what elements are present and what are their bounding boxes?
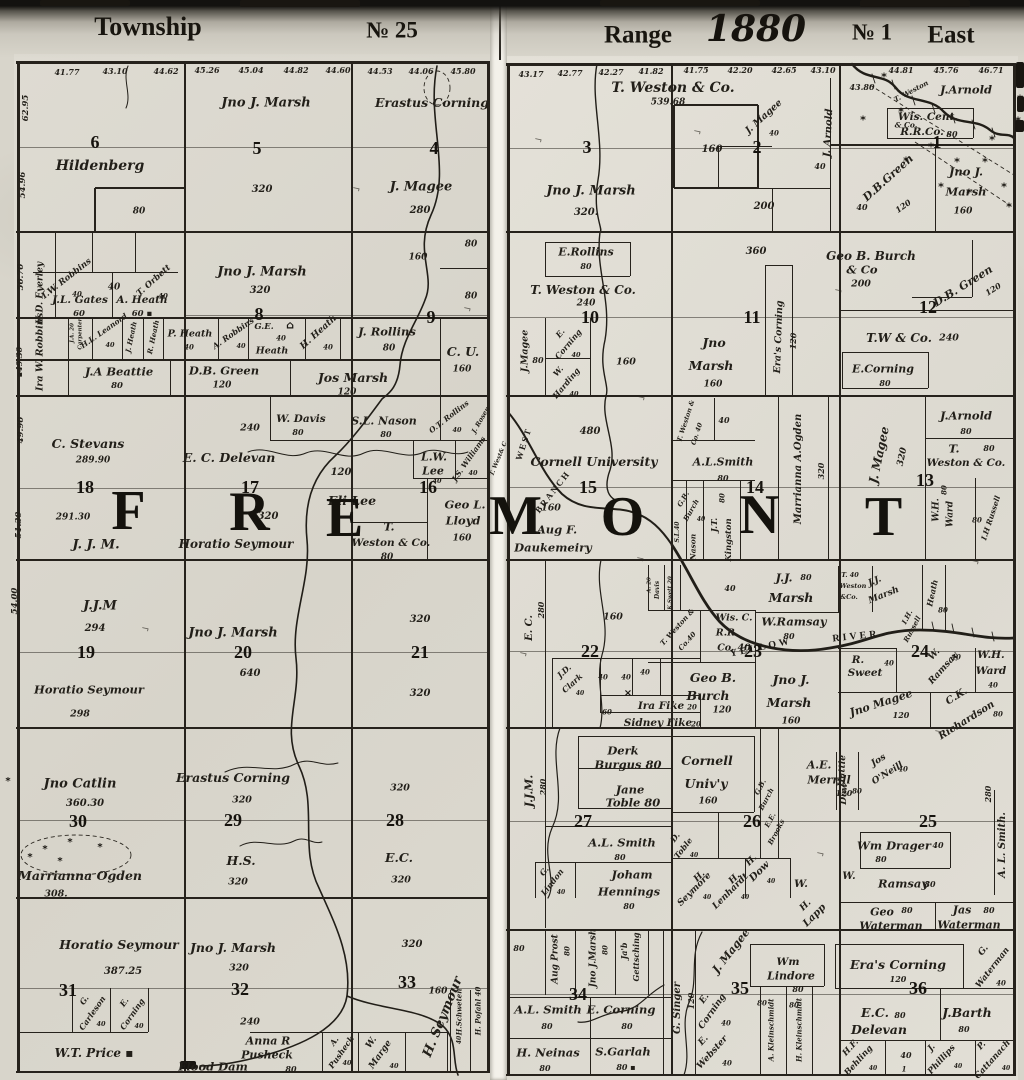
tree-mark: * [954, 157, 960, 168]
parcel-owner-label: H.L. Leanord [79, 312, 128, 350]
section-number: 27 [574, 812, 592, 830]
parcel-owner-label: S.L.40 [675, 522, 681, 543]
section-number: 31 [59, 981, 77, 999]
acreage-value: 320 [402, 940, 423, 950]
survey-mark: ¬ [140, 624, 150, 636]
acreage-value: 80 [852, 788, 862, 795]
acreage-value: 43.10 [102, 67, 127, 75]
acreage-value: 80 [789, 1002, 799, 1009]
acreage-value: 640 [240, 669, 261, 679]
acreage-value: 120 [984, 281, 1002, 297]
acreage-value: 40 [134, 1023, 143, 1030]
parcel-owner-label: Jno J. Marsh [217, 266, 306, 279]
parcel-owner-label: Wis. C. [716, 613, 753, 623]
parcel-owner-label: Joham [611, 869, 652, 881]
parcel-owner-label: &Co. [840, 594, 858, 601]
section-number: 10 [581, 308, 599, 326]
acreage-value: 40 [856, 203, 867, 211]
acreage-value: 291.30 [56, 514, 90, 523]
marsh-mark: * [42, 845, 47, 855]
parcel-owner-label: Jno [702, 337, 725, 350]
section-number: 34 [569, 985, 587, 1003]
parcel-owner-label: J.J. [775, 572, 792, 584]
acreage-value: 80 [111, 382, 123, 391]
acreage-value: 80 [621, 1022, 632, 1030]
acreage-value: 40 [389, 1063, 398, 1070]
parcel-owner-label: Weston [840, 583, 867, 590]
parcel-owner-label: T. Weston & Co. [530, 284, 636, 296]
parcel-owner-label: L.W. [421, 452, 447, 463]
parcel-owner-label: W.T. Price ▪ [55, 1047, 134, 1059]
acreage-value: 80 [541, 1022, 552, 1030]
parcel-owner-label: Aug Prost [552, 934, 561, 984]
parcel-owner-label: Kingston [725, 518, 734, 561]
acreage-value: 80 [901, 906, 912, 914]
acreage-value: 41.82 [638, 67, 663, 75]
tree-mark: * [928, 142, 934, 153]
acreage-value: 20 [691, 721, 701, 728]
acreage-value: 280 [537, 602, 545, 619]
acreage-value: 320 [252, 185, 273, 195]
parcel-owner-label: W. [365, 1036, 379, 1051]
acreage-value: 60 [602, 709, 612, 716]
parcel-owner-label: A. 20 [647, 577, 653, 593]
parcel-owner-label: Dow [840, 783, 850, 805]
parcel-owner-label: A. Heath [116, 295, 167, 306]
acreage-value: 80 [983, 906, 994, 914]
acreage-value: 43.80 [849, 83, 874, 91]
acreage-value: 320 [229, 963, 249, 973]
parcel-owner-label: Wis. Cent. [898, 112, 958, 123]
acreage-value: 120 [331, 468, 352, 478]
parcel-owner-label: Hildenberg [56, 159, 145, 173]
parcel-owner-label: E. C. Delevan [183, 452, 276, 465]
acreage-value: 320 [897, 447, 910, 467]
acreage-value: 80 [800, 573, 811, 581]
parcel-owner-label: P. Heath [168, 329, 213, 339]
parcel-owner-label: T. [383, 521, 394, 533]
parcel-owner-label: A.L. Smith [514, 1004, 582, 1016]
township-letter: F [111, 483, 146, 539]
parcel-owner-label: W.Ramsay [761, 616, 826, 628]
acreage-value: 160 [453, 366, 472, 375]
acreage-value: 320 [390, 783, 410, 793]
acreage-value: 40 [721, 1020, 731, 1027]
parcel-owner-label: E. C. [525, 615, 535, 641]
parcel-owner-label: Marrianna A.Ogden [794, 414, 804, 524]
parcel-owner-label: Burgus 80 [594, 759, 661, 771]
parcel-owner-label: Ira W. Robbins [35, 313, 45, 391]
parcel-owner-label: Weston & Co. [352, 538, 431, 549]
acreage-value: 45.26 [194, 66, 219, 74]
parcel-owner-label: Cornell University [530, 456, 657, 469]
left-page-number: № 25 [366, 19, 418, 42]
parcel-owner-label: Weston & Co. [927, 458, 1006, 469]
marsh-mark: * [27, 853, 32, 863]
parcel-owner-label: Horatio Seymour [34, 684, 144, 696]
parcel-owner-label: J.A. 20 [70, 323, 76, 343]
acreage-value: 80 [292, 428, 303, 436]
acreage-value: 44.82 [283, 66, 308, 74]
acreage-value: 54.00 [11, 588, 20, 615]
parcel-owner-label: Geo [870, 907, 894, 918]
acreage-value: 80 [972, 517, 982, 524]
acreage-value: 120 [893, 711, 910, 719]
acreage-value: 360 [746, 247, 767, 257]
parcel-owner-label: Co. 40 [690, 422, 703, 446]
parcel-owner-label: Sidney Fike [624, 718, 692, 729]
section-number: 19 [77, 643, 95, 661]
acreage-value: 160 [603, 612, 623, 622]
acreage-value: 160 [702, 145, 723, 155]
section-number: 4 [430, 139, 439, 157]
survey-mark: ¬ [833, 286, 843, 298]
acreage-value: 42.65 [771, 66, 796, 74]
parcel-owner-label: A. Robbins [211, 316, 255, 350]
acreage-value: 40 [621, 674, 631, 681]
parcel-owner-label: Toble 80 [606, 797, 661, 809]
parcel-owner-label: Hennings [598, 886, 660, 898]
parcel-owner-label: J.L. Gates [52, 295, 108, 306]
acreage-value: 62.95 [22, 95, 31, 122]
tree-mark: * [1001, 182, 1007, 193]
acreage-value: 240 [240, 423, 260, 433]
marsh-mark: * [97, 843, 102, 853]
section-number: 32 [231, 980, 249, 998]
acreage-value: 45.04 [238, 66, 263, 74]
acreage-value: 40 [457, 1036, 463, 1044]
parcel-owner-label: W. [552, 364, 565, 377]
acreage-value: 80 [875, 855, 886, 863]
parcel-owner-label: T.W & Co. [866, 332, 932, 344]
parcel-owner-label: T. [948, 443, 959, 455]
acreage-value: 80 [133, 208, 146, 217]
parcel-owner-label: O.T. Rollins [428, 399, 470, 434]
parcel-owner-label: J. Rosen [471, 406, 491, 435]
parcel-owner-label: H. Neinas [516, 1047, 579, 1059]
parcel-owner-label: Heath [256, 346, 288, 356]
parcel-owner-label: & Co [846, 264, 877, 276]
acreage-value: 41.75 [683, 66, 708, 74]
parcel-owner-label: Nason [689, 534, 697, 560]
acreage-value: 320 [232, 795, 252, 805]
acreage-value: 120 [789, 333, 798, 350]
acreage-value: 160 [954, 208, 973, 217]
right-page-title: Range [604, 23, 672, 48]
marsh-mark: * [67, 838, 72, 848]
acreage-value: 40 [276, 335, 286, 342]
parcel-owner-label: Marsh [867, 586, 900, 606]
acreage-value: 45.80 [450, 67, 475, 75]
tree-mark: * [989, 135, 995, 146]
parcel-owner-label: Ward [976, 666, 1007, 677]
acreage-value: 60 ▪ [132, 310, 153, 319]
acreage-value: 120 [894, 198, 912, 214]
acreage-value: 40 [557, 890, 565, 896]
parcel-owner-label: A.E. [807, 760, 832, 771]
township-letter: O [601, 489, 646, 545]
parcel-owner-label: W.H. [977, 650, 1004, 661]
acreage-value: 80 [894, 1011, 905, 1019]
section-number: 22 [581, 642, 599, 660]
parcel-owner-label: Marsh [767, 697, 812, 710]
acreage-value: 387.25 [104, 967, 142, 977]
acreage-value: 80 [757, 1000, 767, 1007]
parcel-owner-label: Geo B. [690, 672, 736, 685]
acreage-value: 40 [951, 654, 961, 661]
parcel-owner-label: E.Rollins [558, 247, 613, 258]
acreage-value: 320 [258, 512, 279, 522]
section-number: 3 [583, 138, 592, 156]
acreage-value: 54.96 [19, 172, 28, 199]
acreage-value: 80 [924, 880, 935, 888]
acreage-value: 80 [285, 1065, 296, 1073]
acreage-value: 80 [938, 607, 948, 614]
acreage-value: 40 [105, 342, 114, 349]
right-page-direction: East [927, 23, 974, 48]
survey-mark: ¬ [518, 649, 528, 661]
acreage-value: 80 [719, 493, 726, 503]
parcel-owner-label: Heath [925, 579, 939, 607]
acreage-value: 120 [713, 707, 732, 716]
acreage-value: 80 [602, 945, 609, 955]
acreage-value: 43.17 [518, 70, 543, 78]
parcel-owner-label: Jno Catlin [44, 778, 117, 791]
acreage-value: 80 [958, 1025, 969, 1033]
acreage-value: 40 [323, 344, 333, 351]
parcel-owner-label: J. Rollins [358, 326, 416, 338]
parcel-owner-label: Aug F. [537, 524, 577, 536]
parcel-owner-label: E. [554, 327, 566, 339]
section-number: 6 [91, 133, 100, 151]
survey-mark: ¬ [636, 393, 646, 405]
parcel-owner-label: S.L. Nason [351, 416, 416, 427]
parcel-owner-label: W. [928, 648, 943, 663]
parcel-owner-label: Jane [616, 784, 645, 796]
parcel-owner-label: W. [794, 879, 808, 890]
acreage-value: 40 [576, 691, 584, 697]
survey-mark: ¬ [533, 135, 543, 147]
parcel-owner-label: J. Magee [710, 927, 751, 976]
parcel-owner-label: C. Stevans [52, 438, 125, 451]
parcel-owner-label: Marrianna Ogden [18, 870, 142, 883]
acreage-value: 320 [410, 689, 431, 699]
parcel-owner-label: E. Corning [587, 1004, 656, 1016]
acreage-value: 200 [754, 202, 775, 212]
acreage-value: 320 [410, 615, 431, 625]
acreage-value: 40 [96, 1021, 105, 1028]
acreage-value: 294 [85, 624, 106, 634]
tree-mark: * [1006, 202, 1012, 213]
acreage-value: 80 [532, 356, 543, 364]
section-number: 30 [69, 812, 87, 830]
section-number: 16 [419, 478, 437, 496]
tree-mark: * [881, 72, 887, 83]
section-number: 12 [919, 298, 937, 316]
parcel-owner-label: Jno J. Marsh [188, 627, 277, 640]
parcel-owner-label: Horatio Seymour [59, 939, 179, 952]
section-number: 2 [753, 138, 762, 156]
parcel-owner-label: E.C. [861, 1007, 889, 1020]
parcel-owner-label: E. [697, 1034, 710, 1047]
parcel-owner-label: D.B. Green [189, 365, 259, 377]
acreage-value: 44.60 [325, 66, 350, 74]
parcel-owner-label: Anna R [246, 1036, 291, 1047]
parcel-owner-label: Jos Marsh [318, 372, 388, 385]
section-number: 18 [76, 478, 94, 496]
parcel-owner-label: A.L. Smith [588, 837, 656, 849]
tree-mark: * [903, 156, 909, 167]
acreage-value: 40 [703, 895, 711, 901]
section-number: 14 [746, 478, 764, 496]
acreage-value: 42.77 [557, 69, 582, 77]
section-number: 15 [579, 478, 597, 496]
tree-mark: * [1017, 94, 1023, 105]
acreage-value: 280 [410, 206, 431, 216]
acreage-value: 44.62 [153, 67, 178, 75]
parcel-owner-label: H.Schweten [456, 989, 463, 1036]
parcel-owner-label: E. [698, 992, 711, 1005]
parcel-owner-label: H.S. [226, 855, 255, 868]
section-number: 23 [744, 642, 762, 660]
acreage-value: 40 [598, 674, 608, 681]
parcel-owner-label: D. [669, 831, 681, 843]
acreage-value: 20 [687, 704, 697, 711]
acreage-value: 160 [699, 798, 718, 807]
acreage-value: 160 [409, 254, 428, 263]
parcel-owner-label: Erastus Corning [176, 772, 290, 785]
left-page-title: Township [94, 14, 201, 40]
parcel-owner-label: R. Heath [146, 319, 160, 354]
acreage-value: 80 ▪ [616, 1063, 635, 1071]
parcel-owner-label: A. L. Smith. [998, 812, 1008, 878]
parcel-owner-label: W. Davis [276, 414, 325, 425]
parcel-owner-label: H. Pofahl 40 [475, 987, 482, 1036]
parcel-owner-label: Ja'b [620, 942, 628, 959]
section-number: 5 [253, 139, 262, 157]
parcel-owner-label: Univ'y [684, 778, 727, 791]
parcel-owner-label: J. Magee [867, 425, 891, 484]
acreage-value: 80 [983, 444, 994, 452]
parcel-owner-label: Ramsay [878, 878, 928, 890]
acreage-value: 120 [890, 975, 907, 983]
acreage-value: 40 [569, 391, 578, 398]
acreage-value: 298 [70, 709, 90, 719]
parcel-owner-label: Geo L. [445, 499, 486, 511]
parcel-owner-label: Marsh [689, 360, 734, 373]
parcel-owner-label: Waterman [937, 920, 1000, 931]
parcel-owner-label: D.B. Green [932, 264, 995, 309]
parcel-owner-label: Geo B. Burch [826, 250, 916, 262]
parcel-owner-label: A.L.Smith [693, 457, 754, 468]
parcel-owner-label: T. West& C [489, 441, 508, 477]
acreage-value: 45.76 [933, 66, 958, 74]
acreage-value: 40 [988, 682, 998, 689]
acreage-value: 240 [939, 333, 959, 343]
acreage-value: 80 [946, 130, 957, 138]
parcel-owner-label: Burch [687, 690, 730, 703]
survey-mark: ¬ [351, 184, 361, 196]
parcel-owner-label: Jno J. Marsh [546, 185, 635, 198]
acreage-value: 539.68 [651, 99, 685, 108]
survey-mark: ¬ [692, 127, 702, 139]
parcel-owner-label: Jno J. Marsh [221, 97, 310, 110]
parcel-owner-label: Cornell [681, 755, 732, 768]
parcel-owner-label: Lee [422, 466, 444, 477]
marsh-mark: * [5, 777, 10, 787]
section-number: 35 [731, 979, 749, 997]
parcel-owner-label: Gettsching [632, 933, 640, 982]
house-icon: ⌂ [286, 320, 294, 331]
township-letter: T [865, 489, 903, 545]
acreage-value: 160 [541, 503, 561, 513]
tree-mark: * [1015, 116, 1021, 127]
acreage-value: 80 [623, 902, 634, 910]
section-number: 25 [919, 812, 937, 830]
acreage-value: 280 [984, 786, 992, 803]
acreage-value: 80 [717, 474, 728, 482]
acreage-value: 320 [391, 875, 411, 885]
acreage-value: 80 [539, 1064, 550, 1072]
acreage-value: 40 [884, 660, 894, 667]
acreage-value: 40 [869, 1066, 877, 1072]
parcel-owner-label: S.Garlah [595, 1046, 650, 1058]
parcel-owner-label: T. Weston [893, 79, 930, 103]
acreage-value: ▪49.30 [15, 347, 23, 377]
year-handwritten: 1880 [706, 11, 806, 47]
acreage-value: 40 [571, 352, 580, 359]
acreage-value: 44.53 [367, 67, 392, 75]
acreage-value: 40 [184, 344, 194, 351]
acreage-value: 80 [993, 711, 1003, 718]
acreage-value: 289.90 [76, 457, 110, 466]
acreage-value: 40 [724, 584, 735, 592]
acreage-value: 80 [580, 262, 591, 270]
acreage-value: 40 [898, 766, 908, 773]
acreage-value: 80 [380, 430, 391, 438]
acreage-value: 80 [381, 554, 394, 563]
acreage-value: 120 [687, 993, 695, 1010]
acreage-value: 240 [240, 1017, 260, 1027]
acreage-value: 160 [616, 357, 636, 367]
parcel-owner-label: T. 40 [841, 572, 859, 579]
parcel-owner-label: G. [977, 944, 991, 958]
acreage-value: 42.27 [598, 68, 623, 76]
parcel-owner-label: Jno J. [773, 674, 810, 687]
parcel-labels-layer: Township№ 25Range1880№ 1East41.7743.1044… [0, 0, 1024, 1080]
acreage-value: 40 [697, 517, 705, 523]
acreage-value: 280 [539, 779, 547, 796]
parcel-owner-label: J. Heath [124, 321, 137, 353]
acreage-value: 49.90 [17, 417, 26, 444]
parcel-owner-label: A. Kleinschmidt [768, 999, 775, 1062]
acreage-value: 1 [902, 1066, 907, 1073]
parcel-owner-label: J.T. [711, 518, 720, 533]
acreage-value: 320. [574, 208, 598, 218]
acreage-value: 320 [817, 463, 825, 480]
parcel-owner-label: R. [852, 655, 864, 666]
parcel-owner-label: J.A Beattie [85, 366, 153, 378]
section-number: 11 [743, 308, 760, 326]
parcel-owner-label: J.J.M. [524, 775, 535, 807]
section-number: 26 [743, 812, 761, 830]
parcel-owner-label: Flood Dam [178, 1061, 248, 1073]
acreage-value: 120 [213, 382, 232, 391]
parcel-owner-label: J.Arnold [940, 410, 992, 422]
acreage-value: 40 [722, 1060, 732, 1067]
acreage-value: 41.77 [54, 68, 79, 76]
parcel-owner-label: × [624, 689, 632, 699]
